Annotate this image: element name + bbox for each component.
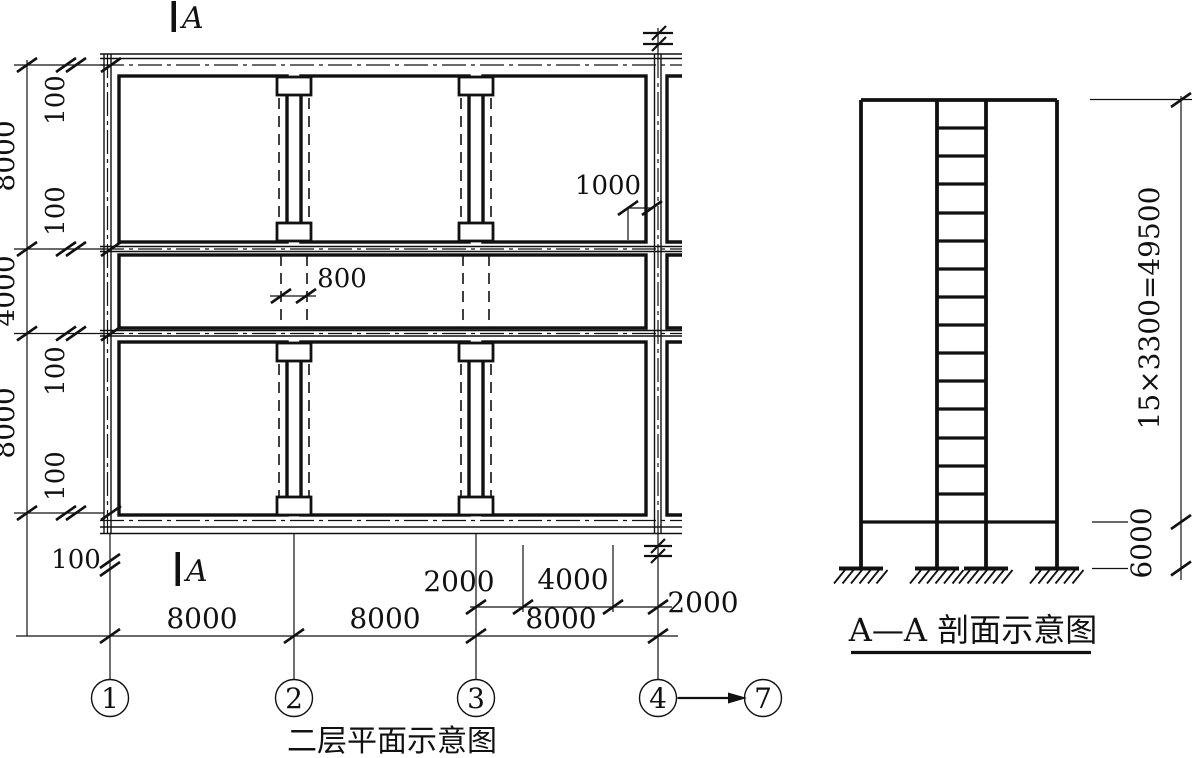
dim-bay3-8000: 8000 — [525, 602, 596, 635]
section-title: A—A 剖面示意图 — [848, 611, 1097, 649]
dim-column-800: 800 — [317, 264, 367, 294]
grid-bubble-4-label: 4 — [649, 682, 667, 715]
section-dimensions: 15×3300=49500 6000 — [1090, 93, 1192, 580]
dim-bay2-8000: 8000 — [349, 602, 420, 635]
drawing-canvas: A A 8000 4000 8000 100 100 100 100 100 8… — [0, 0, 1192, 758]
section-cut-label-top: A — [179, 1, 204, 36]
dim-ground-story: 6000 — [1125, 507, 1158, 578]
partition-walls — [287, 95, 483, 497]
room-walls — [119, 76, 682, 515]
dim-stories: 15×3300=49500 — [1133, 187, 1166, 430]
grid-bubble-7-label: 7 — [754, 682, 772, 715]
grid-bubble-2-label: 2 — [285, 682, 303, 715]
dimension-ticks — [17, 58, 668, 643]
plan-title: 二层平面示意图 — [287, 724, 497, 758]
section-cut-label-bottom: A — [183, 554, 208, 589]
dim-bay1-8000: 8000 — [166, 602, 237, 635]
dimension-lines — [14, 60, 678, 636]
section-cut-markers: A A — [172, 1, 208, 589]
floor-plan: A A 8000 4000 8000 100 100 100 100 100 8… — [0, 1, 782, 758]
grid-bubbles: 1 2 3 4 7 — [92, 680, 782, 717]
foundations — [834, 569, 1084, 584]
wall-band-lines — [100, 54, 682, 534]
dim-sub-2000-left: 2000 — [423, 565, 494, 598]
drawing-sheet: A A 8000 4000 8000 100 100 100 100 100 8… — [0, 0, 1192, 758]
arrowhead-icon — [728, 693, 747, 704]
dim-end-1000: 1000 — [575, 171, 641, 201]
dim-left-4000: 4000 — [0, 255, 21, 326]
dim-wall-offset-4: 100 — [41, 451, 71, 501]
ground-hatch-icon — [834, 570, 1084, 584]
dim-wall-offset-1: 100 — [41, 75, 71, 125]
dim-wall-offset-2: 100 — [41, 186, 71, 236]
grid-bubble-3-label: 3 — [467, 682, 485, 715]
section-cut-bar-top — [172, 1, 177, 32]
dim-wall-offset-3: 100 — [41, 346, 71, 396]
dim-left-8000-bottom: 8000 — [0, 387, 21, 458]
section-view: 15×3300=49500 6000 A—A 剖面示意图 — [834, 93, 1192, 653]
dim-sub-2000-right: 2000 — [667, 586, 738, 619]
section-cut-bar-bottom — [176, 552, 181, 586]
grid-bubble-1-label: 1 — [101, 682, 119, 715]
section-columns — [861, 100, 1057, 568]
section-floor-lines — [861, 128, 1057, 522]
dim-left-8000-top: 8000 — [0, 120, 21, 191]
dim-grid1-offset: 100 — [51, 545, 101, 575]
grid-4-to-7-arrow — [678, 693, 748, 704]
axis-centerlines — [100, 54, 682, 534]
dim-sub-4000: 4000 — [537, 563, 608, 596]
